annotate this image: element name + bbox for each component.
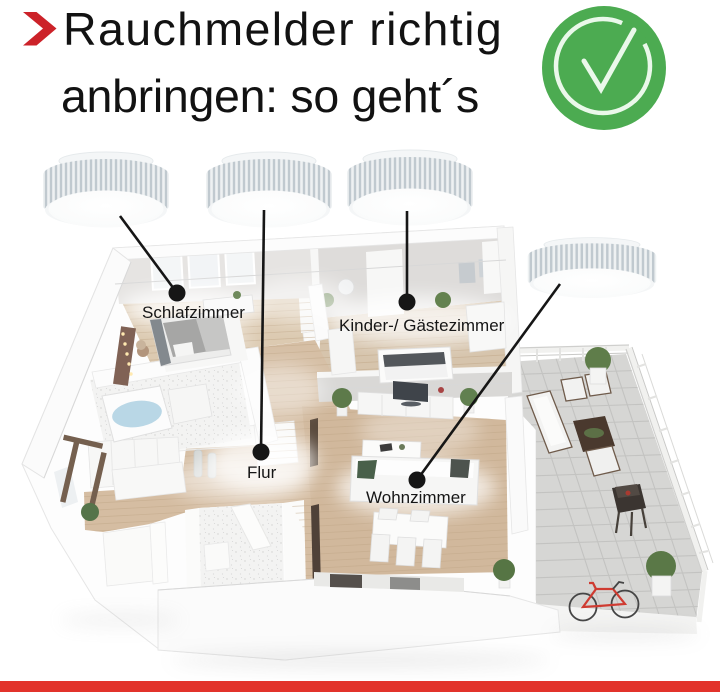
svg-text:Flur: Flur (247, 463, 277, 482)
svg-text:Rauchmelder richtig: Rauchmelder richtig (63, 3, 503, 55)
svg-text:Schlafzimmer: Schlafzimmer (142, 303, 245, 322)
svg-text:Kinder-/ Gästezimmer: Kinder-/ Gästezimmer (339, 316, 505, 335)
svg-text:Wohnzimmer: Wohnzimmer (366, 488, 466, 507)
svg-text:anbringen: so geht´s: anbringen: so geht´s (61, 70, 479, 122)
